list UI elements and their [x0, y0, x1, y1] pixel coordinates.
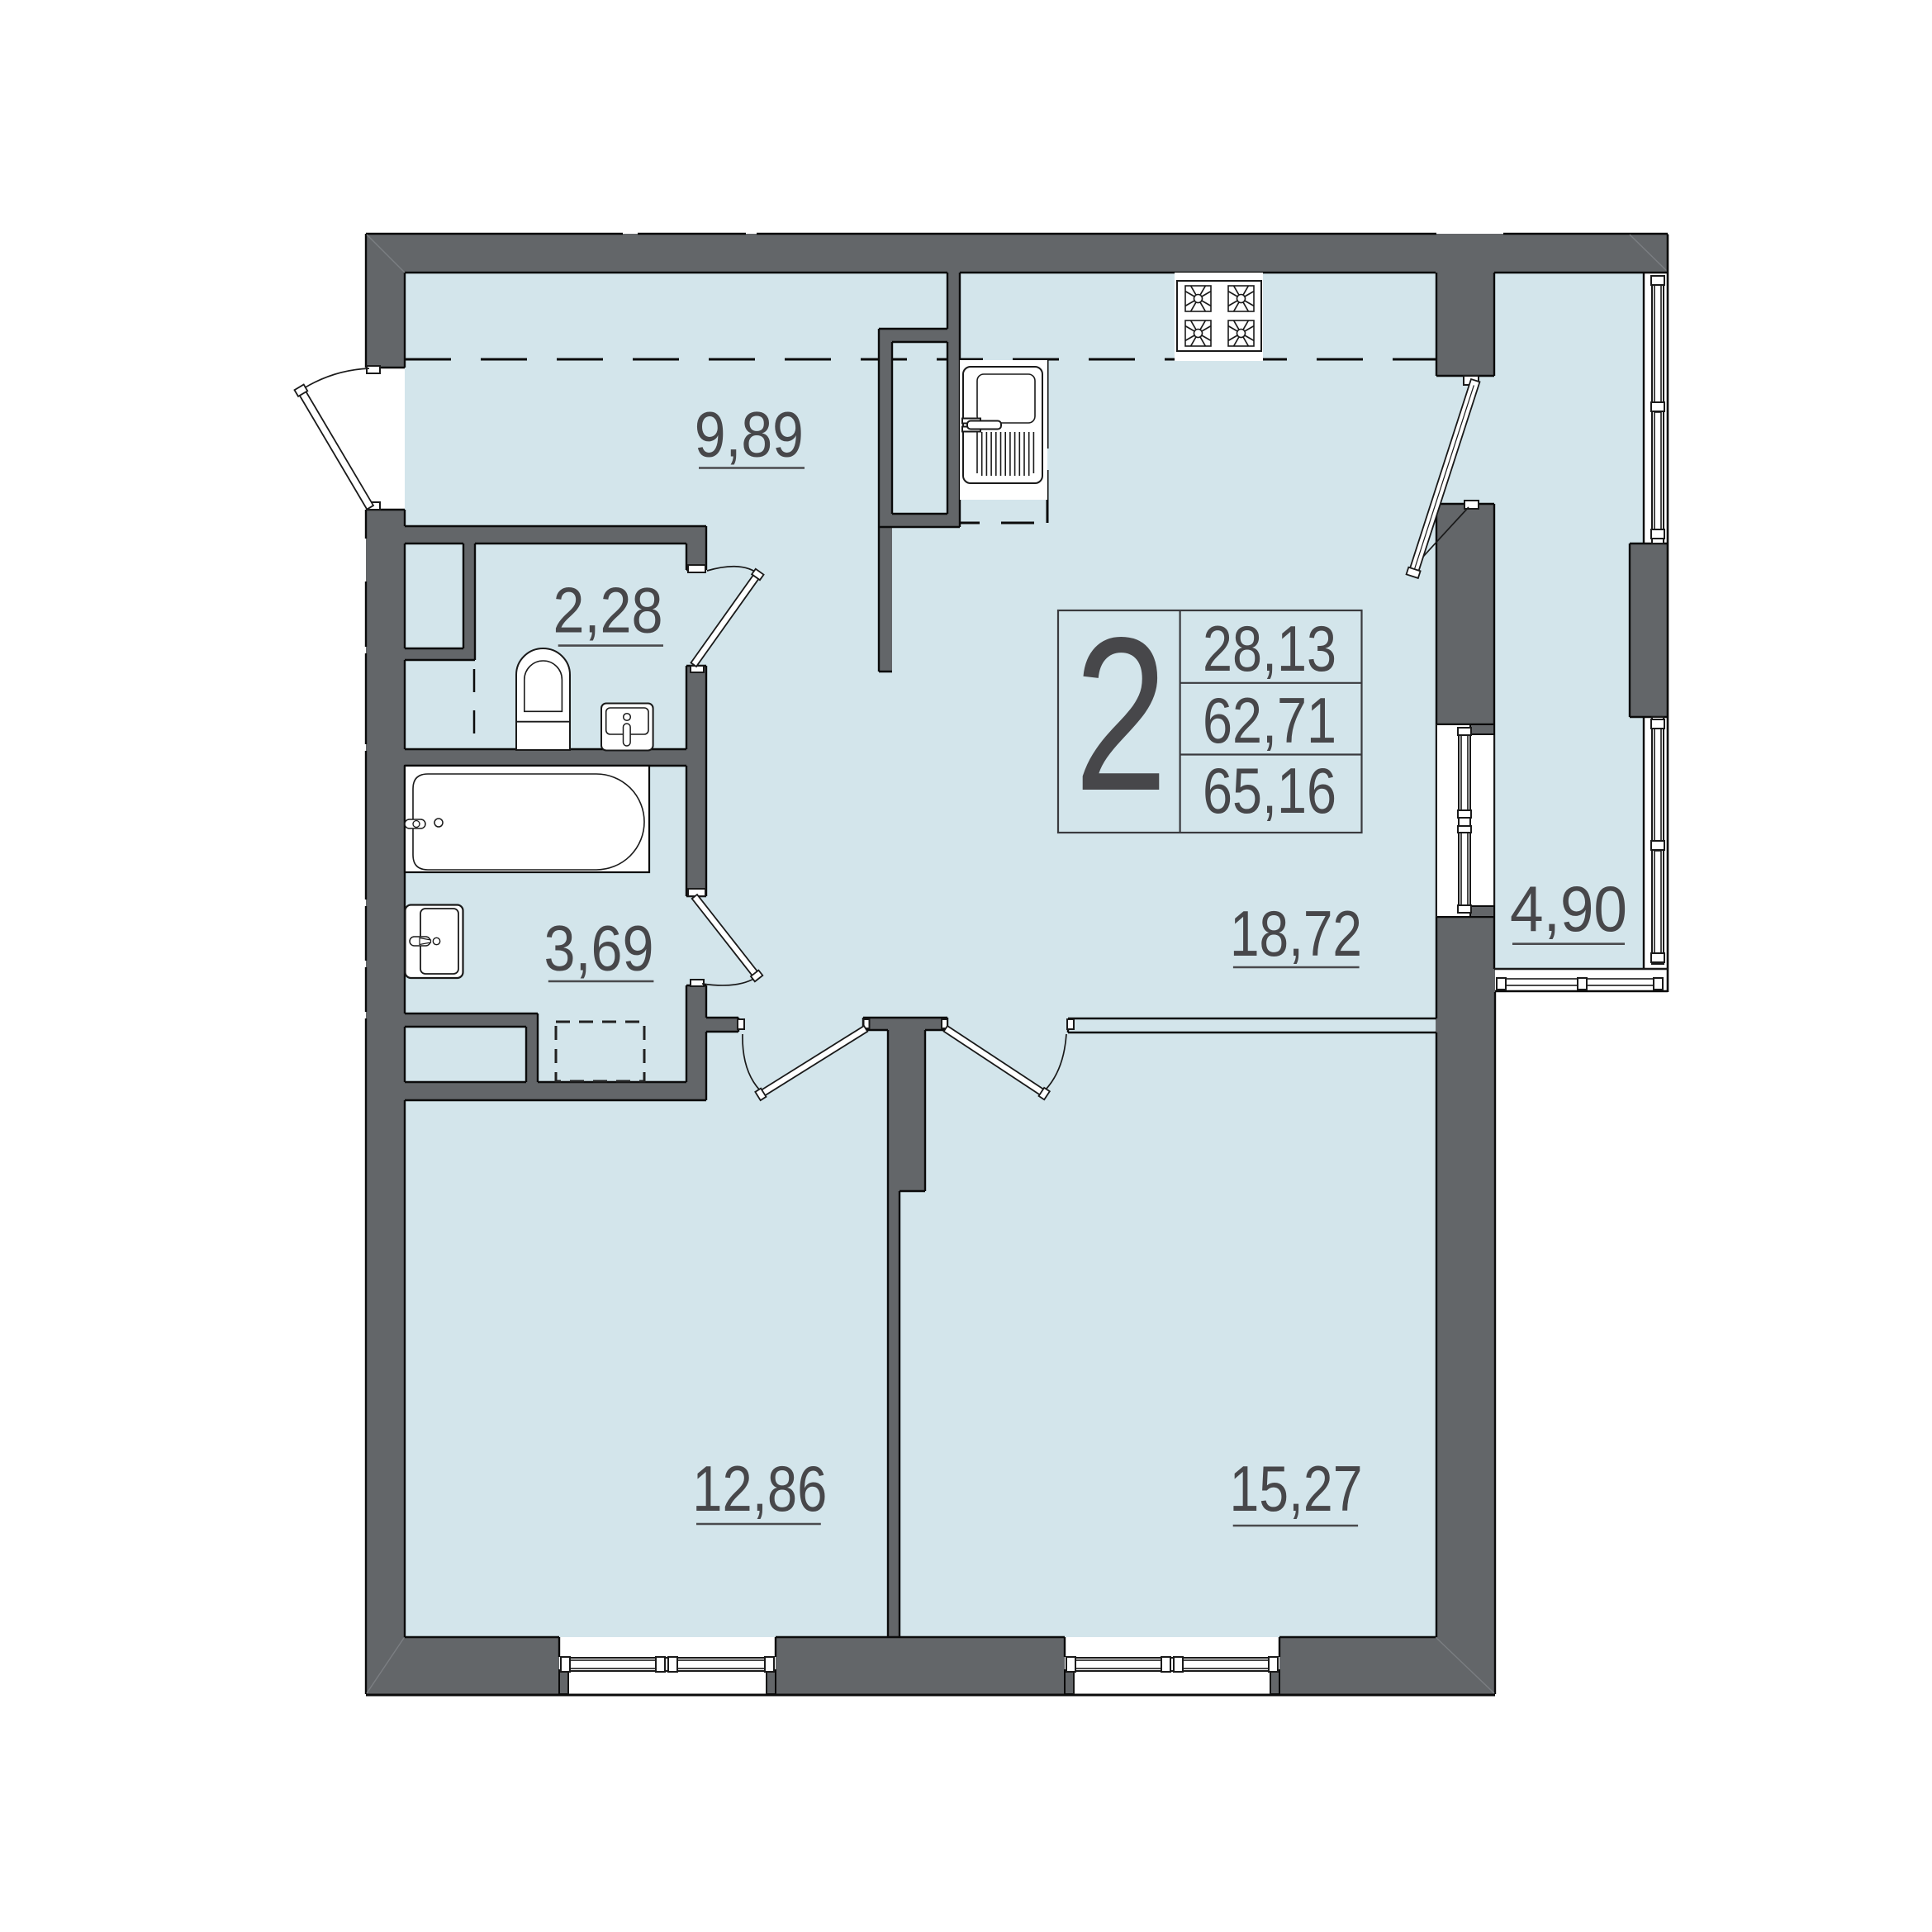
- svg-text:4,90: 4,90: [1510, 872, 1627, 945]
- svg-text:28,13: 28,13: [1203, 612, 1336, 685]
- svg-text:12,86: 12,86: [692, 1452, 827, 1525]
- svg-text:65,16: 65,16: [1203, 754, 1336, 827]
- svg-text:15,27: 15,27: [1230, 1452, 1363, 1525]
- svg-text:9,89: 9,89: [695, 398, 804, 471]
- svg-text:62,71: 62,71: [1203, 684, 1336, 757]
- svg-text:18,72: 18,72: [1230, 897, 1362, 970]
- svg-text:2,28: 2,28: [553, 574, 663, 647]
- svg-text:2: 2: [1075, 592, 1168, 837]
- svg-text:3,69: 3,69: [544, 911, 654, 984]
